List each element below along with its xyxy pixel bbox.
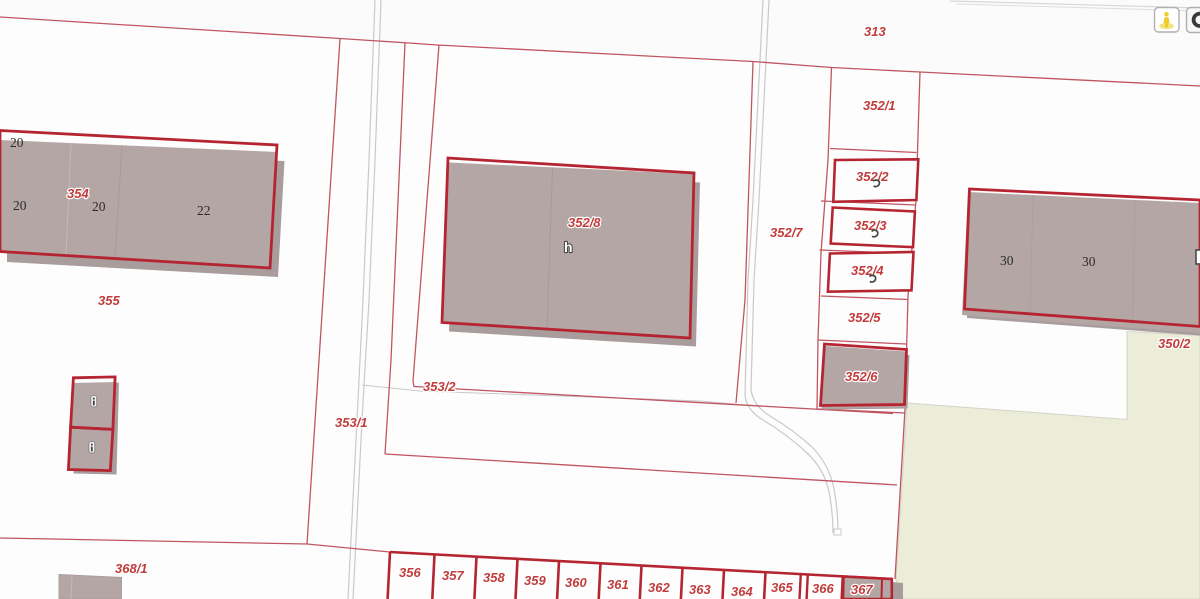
svg-text:366: 366 [812, 581, 834, 596]
svg-text:20: 20 [13, 198, 27, 213]
svg-text:352/3: 352/3 [854, 218, 887, 233]
svg-text:20: 20 [10, 135, 24, 150]
svg-text:352/2: 352/2 [856, 169, 889, 184]
svg-text:362: 362 [648, 580, 670, 595]
svg-text:361: 361 [607, 577, 629, 592]
svg-text:360: 360 [565, 575, 587, 590]
svg-text:22: 22 [197, 203, 211, 218]
svg-text:364: 364 [731, 584, 753, 599]
svg-text:352/8: 352/8 [568, 215, 601, 230]
svg-text:352/1: 352/1 [863, 98, 896, 113]
svg-text:h: h [564, 239, 573, 255]
svg-text:353/1: 353/1 [335, 415, 368, 430]
svg-text:353/2: 353/2 [423, 379, 456, 394]
svg-text:30: 30 [1000, 253, 1014, 268]
svg-text:359: 359 [524, 573, 546, 588]
svg-text:352/6: 352/6 [845, 369, 878, 384]
svg-text:357: 357 [442, 568, 464, 583]
svg-text:363: 363 [689, 582, 711, 597]
svg-text:313: 313 [864, 24, 886, 39]
svg-text:365: 365 [771, 580, 793, 595]
svg-text:352/5: 352/5 [848, 310, 881, 325]
svg-text:350/2: 350/2 [1158, 336, 1191, 351]
svg-text:30: 30 [1082, 254, 1096, 269]
svg-text:367: 367 [851, 582, 873, 597]
svg-text:352/4: 352/4 [851, 263, 884, 278]
svg-text:368/1: 368/1 [115, 561, 148, 576]
svg-text:354: 354 [67, 186, 89, 201]
svg-text:352/7: 352/7 [770, 225, 803, 240]
svg-text:356: 356 [399, 565, 421, 580]
svg-text:358: 358 [483, 570, 505, 585]
svg-text:20: 20 [92, 199, 106, 214]
svg-text:355: 355 [98, 293, 120, 308]
